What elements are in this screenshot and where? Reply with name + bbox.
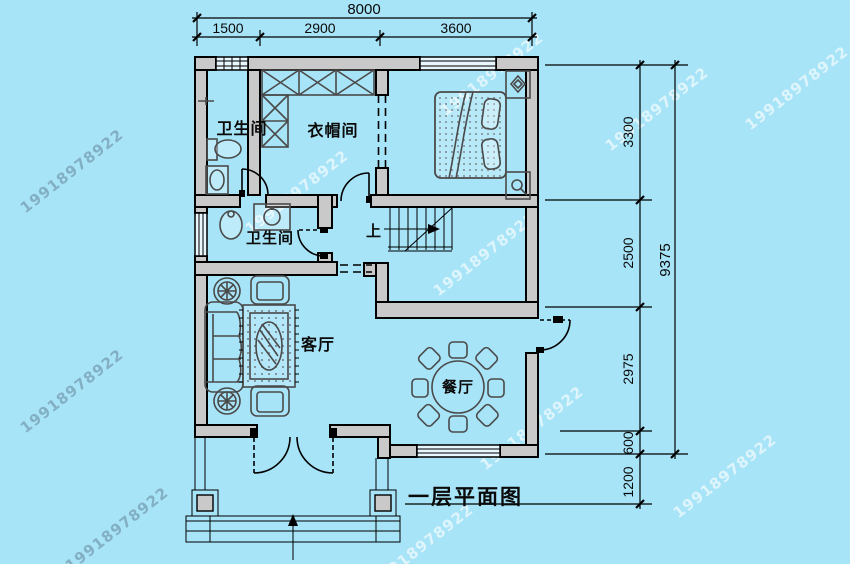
dim-right-seg3: 2975 xyxy=(620,353,636,384)
dim-top-total: 8000 xyxy=(347,1,380,18)
wall-left xyxy=(195,70,207,213)
wall-right xyxy=(526,353,538,457)
side-table-plant-top xyxy=(214,278,240,304)
coffee-table-rug xyxy=(239,305,299,387)
dim-right-seg5: 1200 xyxy=(620,466,636,497)
wall-south-living xyxy=(195,425,257,437)
stair-up-label: 上 xyxy=(366,222,382,240)
label-living: 客厅 xyxy=(301,335,335,354)
pillow xyxy=(481,98,501,130)
label-cloakroom: 衣帽间 xyxy=(307,121,358,140)
dim-right-total: 9375 xyxy=(657,243,674,276)
dim-top-seg3: 3600 xyxy=(440,20,471,36)
squat-toilet xyxy=(220,211,242,239)
wall-top xyxy=(248,57,420,70)
window-bathroom1 xyxy=(216,57,248,70)
wall-bathroom2-south xyxy=(195,262,337,275)
pillow xyxy=(481,138,501,170)
wall-bathroom2-east xyxy=(318,195,332,228)
window-dining xyxy=(417,445,500,457)
toilet-bowl xyxy=(215,140,241,158)
side-table-plant-bottom xyxy=(214,388,240,414)
dim-right-seg1: 3300 xyxy=(620,116,636,147)
floor-plan-page: 19918978922 19918978922 19918978922 1991… xyxy=(0,0,850,564)
wall-south-living xyxy=(330,425,390,437)
dim-right-seg4: 600 xyxy=(620,431,636,455)
label-dining: 餐厅 xyxy=(442,378,474,396)
wall-top xyxy=(496,57,538,70)
wall-mid xyxy=(371,195,538,207)
wall-south-dining xyxy=(390,445,417,457)
floor-plan-drawing: 19918978922 19918978922 19918978922 1991… xyxy=(0,0,850,564)
dim-top-seg2: 2900 xyxy=(304,20,335,36)
faucet xyxy=(270,206,274,210)
wall-south-dining xyxy=(500,445,538,457)
wall-step xyxy=(378,437,390,458)
label-bathroom-mid: 卫生间 xyxy=(246,229,294,247)
dim-top-seg1: 1500 xyxy=(212,20,243,36)
wall-cloakroom-east xyxy=(376,168,388,195)
wall-top xyxy=(195,57,216,70)
wall-mid xyxy=(195,195,240,207)
label-bathroom-top: 卫生间 xyxy=(216,119,267,138)
window-bathroom2 xyxy=(195,213,207,256)
wall-stairhall-south xyxy=(376,302,538,318)
wall-cloakroom-east xyxy=(376,70,388,95)
window-bedroom xyxy=(420,57,496,70)
dim-right-seg2: 2500 xyxy=(620,237,636,268)
plan-title: 一层平面图 xyxy=(408,485,523,509)
